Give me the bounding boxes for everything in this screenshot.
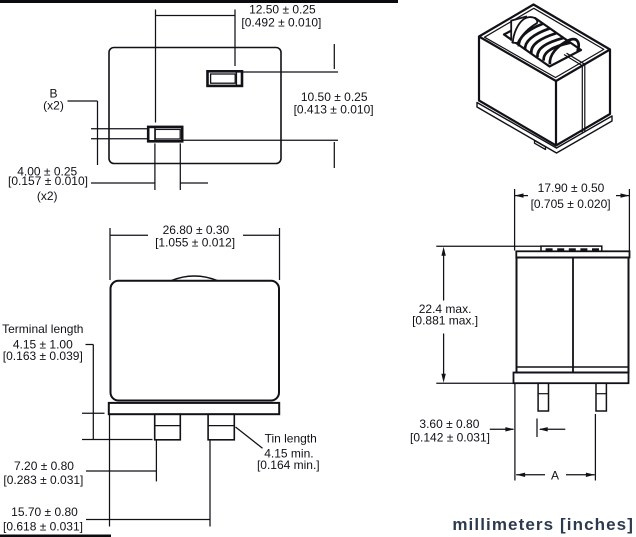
svg-text:[0.413 ± 0.010]: [0.413 ± 0.010] <box>294 103 374 117</box>
svg-text:millimeters [inches]: millimeters [inches] <box>452 515 634 534</box>
svg-text:[0.164 min.]: [0.164 min.] <box>257 458 320 472</box>
svg-text:(x2): (x2) <box>37 189 58 203</box>
svg-text:3.60 ± 0.80: 3.60 ± 0.80 <box>419 417 479 431</box>
svg-text:7.20 ± 0.80: 7.20 ± 0.80 <box>14 459 74 473</box>
svg-text:[0.618 ± 0.031]: [0.618 ± 0.031] <box>3 520 83 534</box>
svg-text:(x2): (x2) <box>43 99 64 113</box>
svg-text:17.90 ± 0.50: 17.90 ± 0.50 <box>538 181 605 195</box>
svg-text:Terminal length: Terminal length <box>2 322 83 336</box>
svg-text:[0.157 ± 0.010]: [0.157 ± 0.010] <box>8 174 88 188</box>
svg-text:[0.881 max.]: [0.881 max.] <box>412 314 478 328</box>
svg-text:[0.142 ± 0.031]: [0.142 ± 0.031] <box>410 431 490 445</box>
svg-text:15.70 ± 0.80: 15.70 ± 0.80 <box>11 505 78 519</box>
svg-text:[0.283 ± 0.031]: [0.283 ± 0.031] <box>3 473 83 487</box>
svg-text:[0.163 ± 0.039]: [0.163 ± 0.039] <box>3 349 83 363</box>
svg-text:[0.492 ± 0.010]: [0.492 ± 0.010] <box>241 15 321 29</box>
svg-text:[0.705 ± 0.020]: [0.705 ± 0.020] <box>531 197 611 211</box>
svg-text:Tin length: Tin length <box>265 432 317 446</box>
svg-text:[1.055 ± 0.012]: [1.055 ± 0.012] <box>155 236 235 250</box>
svg-text:A: A <box>551 468 559 482</box>
